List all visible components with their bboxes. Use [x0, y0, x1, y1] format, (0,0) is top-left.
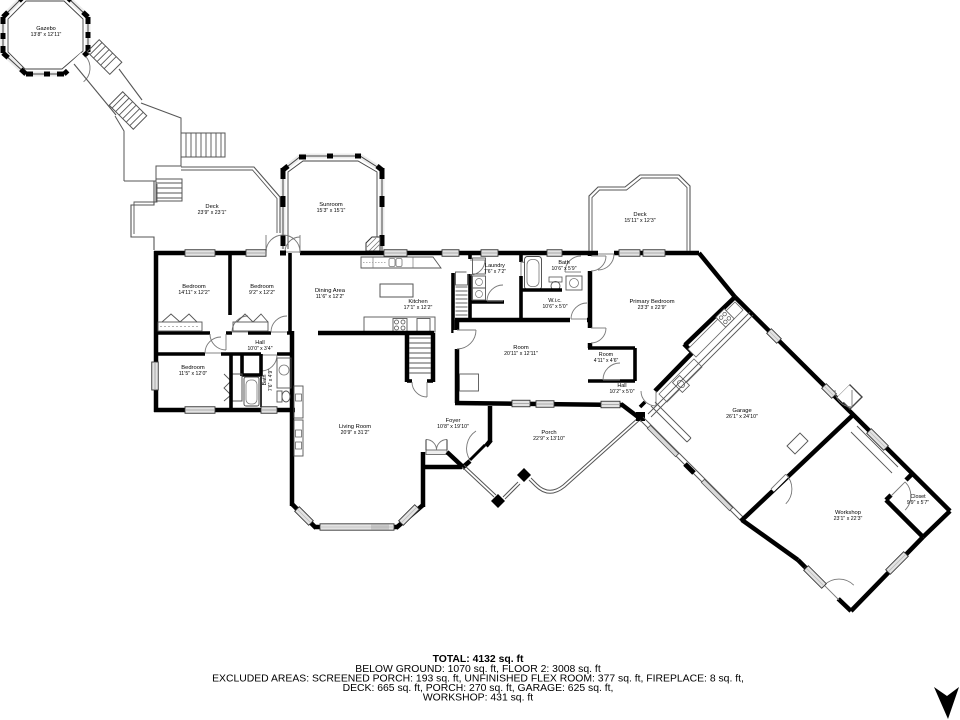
svg-text:Dining Area: Dining Area	[315, 288, 346, 294]
svg-text:14’11" x 12’2": 14’11" x 12’2"	[178, 290, 209, 296]
svg-text:Primary Bedroom: Primary Bedroom	[629, 299, 674, 305]
svg-text:22’9" x 13’10": 22’9" x 13’10"	[533, 436, 565, 442]
svg-text:Deck: Deck	[633, 212, 646, 218]
svg-text:4’11" x 4’6": 4’11" x 4’6"	[594, 358, 619, 364]
svg-text:15’11" x 12’3": 15’11" x 12’3"	[624, 218, 655, 224]
svg-text:Sunroom: Sunroom	[319, 202, 343, 208]
svg-text:23’3" x 22’9": 23’3" x 22’9"	[638, 305, 667, 311]
svg-text:Hall: Hall	[255, 340, 264, 346]
svg-text:Gazebo: Gazebo	[36, 26, 56, 32]
svg-text:23’1" x 22’3": 23’1" x 22’3"	[834, 516, 863, 522]
svg-text:Room: Room	[599, 352, 614, 358]
svg-text:Closet: Closet	[910, 494, 926, 500]
svg-text:Bath: Bath	[262, 374, 268, 385]
svg-text:Bedroom: Bedroom	[181, 365, 205, 371]
svg-text:Living Room: Living Room	[339, 424, 371, 430]
svg-text:W.i.c.: W.i.c.	[548, 298, 562, 304]
svg-text:20’9" x 31’2": 20’9" x 31’2"	[341, 430, 370, 436]
svg-text:17’1" x 12’2": 17’1" x 12’2"	[404, 305, 433, 311]
svg-text:23’9" x 23’1": 23’9" x 23’1"	[198, 210, 227, 216]
svg-text:9’9" x 5’7": 9’9" x 5’7"	[907, 500, 929, 506]
svg-text:26’1" x 24’10": 26’1" x 24’10"	[726, 414, 758, 420]
svg-text:Workshop: Workshop	[835, 510, 861, 516]
svg-text:20’11" x 12’11": 20’11" x 12’11"	[504, 351, 538, 357]
svg-text:WORKSHOP: 431 sq. ft: WORKSHOP: 431 sq. ft	[423, 693, 533, 704]
svg-text:7’6" x 4’9": 7’6" x 4’9"	[268, 369, 274, 391]
svg-text:Bath: Bath	[558, 260, 569, 266]
svg-text:Foyer: Foyer	[446, 418, 461, 424]
svg-text:Laundry: Laundry	[485, 263, 505, 269]
svg-text:10’6" x 5’9": 10’6" x 5’9"	[552, 266, 577, 272]
svg-text:Hall: Hall	[617, 383, 626, 389]
svg-text:7’6" x 7’2": 7’6" x 7’2"	[484, 269, 506, 275]
svg-text:13’8" x 12’11": 13’8" x 12’11"	[31, 32, 62, 38]
svg-text:9’2" x 12’2": 9’2" x 12’2"	[249, 290, 275, 296]
svg-text:Kitchen: Kitchen	[408, 299, 427, 305]
svg-text:11’6" x 12’2": 11’6" x 12’2"	[316, 294, 345, 300]
svg-text:10’8" x 19’10": 10’8" x 19’10"	[437, 424, 469, 430]
svg-text:11’5" x 12’0": 11’5" x 12’0"	[179, 371, 208, 377]
svg-text:10’2" x 5’0": 10’2" x 5’0"	[610, 389, 635, 395]
svg-text:10’0" x 3’4": 10’0" x 3’4"	[248, 346, 273, 352]
svg-text:Room: Room	[513, 345, 529, 351]
svg-text:Bedroom: Bedroom	[182, 284, 206, 290]
svg-text:Porch: Porch	[541, 430, 556, 436]
svg-text:Deck: Deck	[205, 204, 218, 210]
svg-text:Garage: Garage	[732, 408, 751, 414]
svg-text:10’6" x 5’0": 10’6" x 5’0"	[543, 304, 568, 310]
svg-text:15’3" x 15’1": 15’3" x 15’1"	[317, 208, 346, 214]
svg-text:Bedroom: Bedroom	[250, 284, 274, 290]
